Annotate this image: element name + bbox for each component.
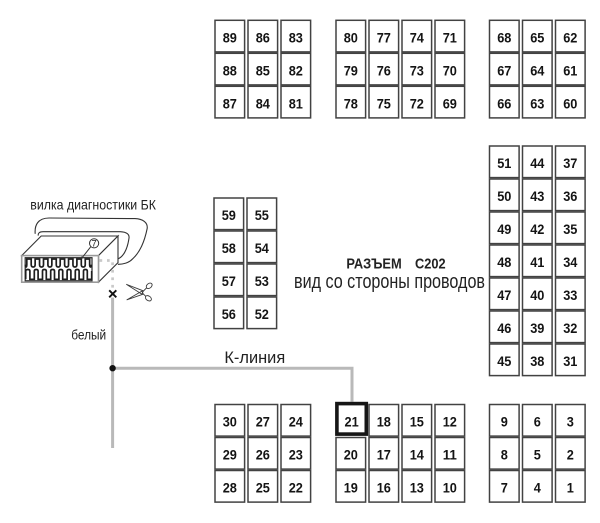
svg-text:64: 64 — [530, 62, 544, 78]
svg-text:73: 73 — [410, 62, 424, 78]
svg-text:33: 33 — [563, 287, 577, 303]
svg-text:6: 6 — [534, 414, 541, 430]
svg-text:56: 56 — [222, 306, 236, 322]
svg-text:1: 1 — [567, 480, 574, 496]
svg-text:45: 45 — [497, 353, 511, 369]
svg-text:48: 48 — [497, 254, 511, 270]
svg-text:2: 2 — [567, 447, 574, 463]
svg-text:69: 69 — [443, 95, 457, 111]
svg-text:32: 32 — [563, 320, 577, 336]
svg-text:26: 26 — [256, 447, 270, 463]
svg-text:81: 81 — [289, 95, 303, 111]
svg-text:85: 85 — [256, 62, 270, 78]
svg-text:70: 70 — [443, 62, 457, 78]
svg-text:40: 40 — [530, 287, 544, 303]
svg-text:10: 10 — [443, 480, 457, 496]
svg-text:7: 7 — [91, 239, 96, 250]
svg-text:39: 39 — [530, 320, 544, 336]
svg-text:18: 18 — [377, 414, 391, 430]
svg-text:82: 82 — [289, 62, 303, 78]
svg-text:52: 52 — [255, 306, 269, 322]
svg-text:51: 51 — [497, 155, 511, 171]
svg-text:27: 27 — [256, 414, 270, 430]
svg-text:20: 20 — [344, 447, 358, 463]
svg-text:58: 58 — [222, 240, 236, 256]
svg-text:72: 72 — [410, 95, 424, 111]
svg-text:88: 88 — [223, 62, 237, 78]
svg-text:28: 28 — [223, 480, 237, 496]
svg-text:84: 84 — [256, 95, 270, 111]
svg-text:68: 68 — [497, 29, 511, 45]
svg-text:23: 23 — [289, 447, 303, 463]
svg-text:5: 5 — [534, 447, 541, 463]
svg-text:8: 8 — [501, 447, 508, 463]
svg-text:4: 4 — [534, 480, 541, 496]
svg-text:12: 12 — [443, 414, 457, 430]
svg-text:белый: белый — [71, 327, 106, 342]
svg-text:66: 66 — [497, 95, 511, 111]
svg-text:87: 87 — [223, 95, 237, 111]
svg-text:46: 46 — [497, 320, 511, 336]
svg-text:44: 44 — [530, 155, 544, 171]
svg-text:54: 54 — [255, 240, 269, 256]
svg-text:41: 41 — [530, 254, 544, 270]
svg-text:89: 89 — [223, 29, 237, 45]
svg-text:37: 37 — [563, 155, 577, 171]
svg-text:50: 50 — [497, 188, 511, 204]
svg-text:11: 11 — [443, 447, 457, 463]
svg-text:86: 86 — [256, 29, 270, 45]
svg-text:36: 36 — [563, 188, 577, 204]
svg-text:25: 25 — [256, 480, 270, 496]
svg-text:19: 19 — [344, 480, 358, 496]
svg-text:вилка диагностики БК: вилка диагностики БК — [30, 197, 156, 213]
svg-text:47: 47 — [497, 287, 511, 303]
svg-text:49: 49 — [497, 221, 511, 237]
svg-text:14: 14 — [410, 447, 424, 463]
svg-text:57: 57 — [222, 273, 236, 289]
svg-text:43: 43 — [530, 188, 544, 204]
svg-text:55: 55 — [255, 207, 269, 223]
svg-text:3: 3 — [567, 414, 574, 430]
svg-text:13: 13 — [410, 480, 424, 496]
svg-text:24: 24 — [289, 414, 303, 430]
svg-text:65: 65 — [530, 29, 544, 45]
svg-text:31: 31 — [563, 353, 577, 369]
svg-text:76: 76 — [377, 62, 391, 78]
svg-text:62: 62 — [563, 29, 577, 45]
svg-text:75: 75 — [377, 95, 391, 111]
svg-text:63: 63 — [530, 95, 544, 111]
svg-text:79: 79 — [344, 62, 358, 78]
svg-text:35: 35 — [563, 221, 577, 237]
svg-text:17: 17 — [377, 447, 391, 463]
svg-text:59: 59 — [222, 207, 236, 223]
svg-text:61: 61 — [563, 62, 577, 78]
svg-text:78: 78 — [344, 95, 358, 111]
svg-text:21: 21 — [345, 413, 359, 429]
svg-text:30: 30 — [223, 414, 237, 430]
svg-text:67: 67 — [497, 62, 511, 78]
svg-text:53: 53 — [255, 273, 269, 289]
svg-text:80: 80 — [344, 29, 358, 45]
svg-text:7: 7 — [501, 480, 508, 496]
svg-text:15: 15 — [410, 414, 424, 430]
svg-text:42: 42 — [530, 221, 544, 237]
svg-text:74: 74 — [410, 29, 424, 45]
svg-text:РАЗЪЕМ: РАЗЪЕМ — [346, 255, 401, 272]
svg-text:22: 22 — [289, 480, 303, 496]
svg-text:34: 34 — [563, 254, 577, 270]
svg-text:77: 77 — [377, 29, 391, 45]
svg-text:16: 16 — [377, 480, 391, 496]
svg-text:71: 71 — [443, 29, 457, 45]
svg-text:К-линия: К-линия — [224, 349, 285, 367]
svg-text:83: 83 — [289, 29, 303, 45]
svg-text:60: 60 — [563, 95, 577, 111]
svg-text:9: 9 — [501, 414, 508, 430]
svg-text:вид со стороны проводов: вид со стороны проводов — [294, 271, 485, 293]
svg-text:38: 38 — [530, 353, 544, 369]
svg-text:29: 29 — [223, 447, 237, 463]
svg-text:С202: С202 — [415, 255, 446, 272]
